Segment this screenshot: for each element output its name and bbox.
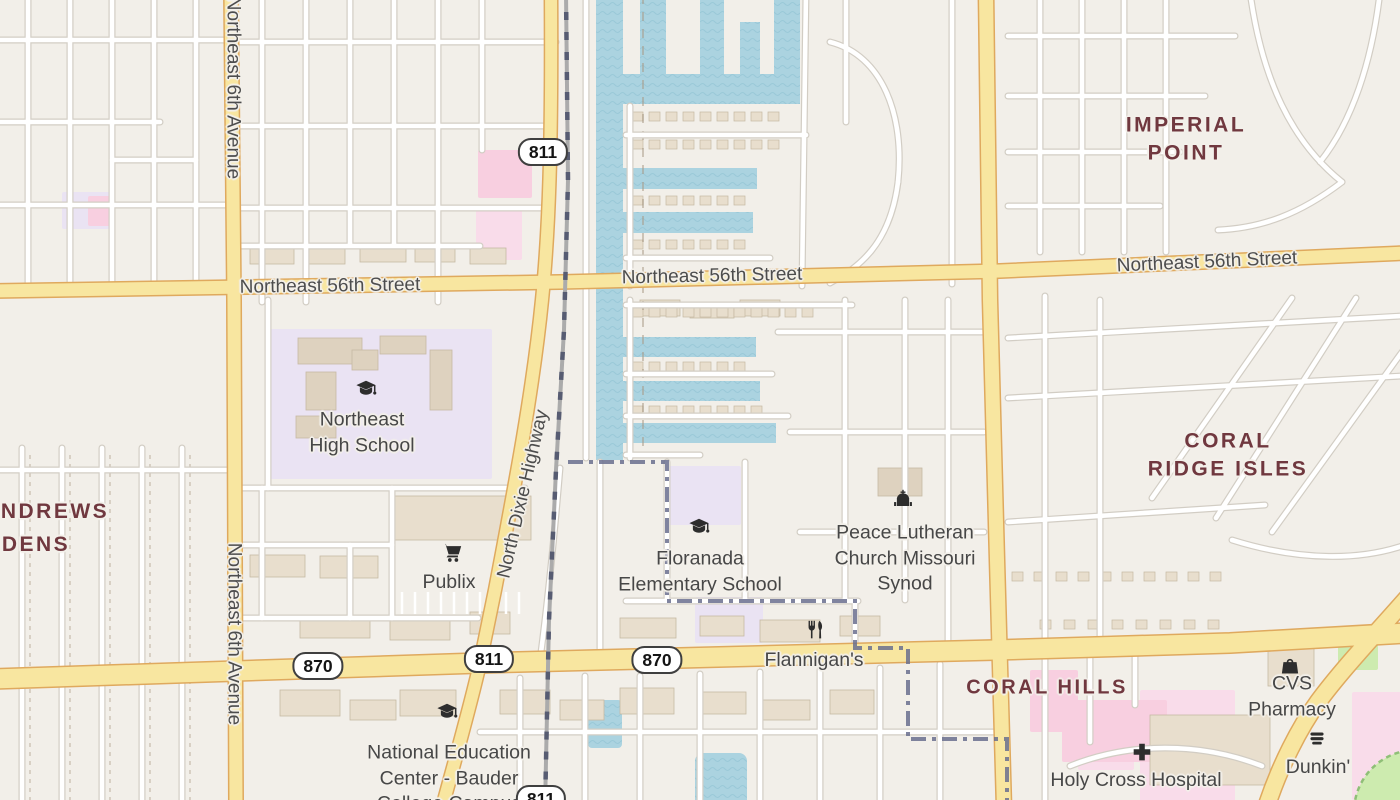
poi-label-northeast-high-school: Northeast High School (309, 407, 414, 458)
map-canvas[interactable]: IMPERIAL POINTCORAL RIDGE ISLESCORAL HIL… (0, 0, 1400, 800)
poi-label-flannigan-s: Flannigan's (764, 648, 863, 674)
fastfood-icon (1307, 729, 1328, 750)
school-icon (689, 517, 710, 538)
cart-icon (442, 543, 463, 564)
route-shield-870-1: 870 (292, 652, 343, 680)
poi-label-cvs-pharmacy: CVS Pharmacy (1238, 671, 1346, 722)
poi-label-floranada-elementary-school: Floranada Elementary School (618, 546, 782, 597)
street-label-northeast-6th-avenue: Northeast 6th Avenue (221, 543, 246, 725)
route-shield-811-4: 811 (516, 785, 566, 800)
poi-label-dunkin: Dunkin' (1286, 755, 1350, 781)
street-label-northeast-56th-street: Northeast 56th Street (1116, 245, 1298, 278)
place-label-imperial-point: IMPERIAL POINT (1126, 112, 1246, 169)
street-label-northeast-56th-street: Northeast 56th Street (621, 262, 802, 291)
hospital-icon (1132, 742, 1153, 763)
route-shield-870-3: 870 (631, 646, 682, 674)
place-label-dens: DENS (2, 531, 70, 559)
street-label-north-dixie-highway: North Dixie Highway (491, 407, 554, 580)
poi-label-holy-cross-hospital: Holy Cross Hospital (1050, 768, 1221, 794)
restaurant-icon (806, 620, 827, 641)
school-icon (356, 379, 377, 400)
map-labels-layer: IMPERIAL POINTCORAL RIDGE ISLESCORAL HIL… (0, 0, 1400, 800)
place-label-coral-ridge-isles: CORAL RIDGE ISLES (1148, 428, 1309, 485)
place-label-ndrews: NDREWS (1, 498, 109, 526)
street-label-northeast-56th-street: Northeast 56th Street (240, 272, 421, 300)
poi-label-publix: Publix (422, 570, 475, 596)
poi-label-national-education-center-bauder-college-campus: National Education Center - Bauder Colle… (367, 740, 531, 800)
place-label-coral-hills: CORAL HILLS (966, 675, 1128, 702)
poi-label-peace-lutheran-church-missouri-synod: Peace Lutheran Church Missouri Synod (835, 520, 976, 597)
route-shield-811-2: 811 (464, 645, 514, 673)
street-label-northeast-6th-avenue: Northeast 6th Avenue (220, 0, 245, 179)
school-icon (437, 702, 458, 723)
church-icon (893, 489, 914, 510)
bag-icon (1280, 656, 1301, 677)
route-shield-811-0: 811 (518, 138, 568, 166)
